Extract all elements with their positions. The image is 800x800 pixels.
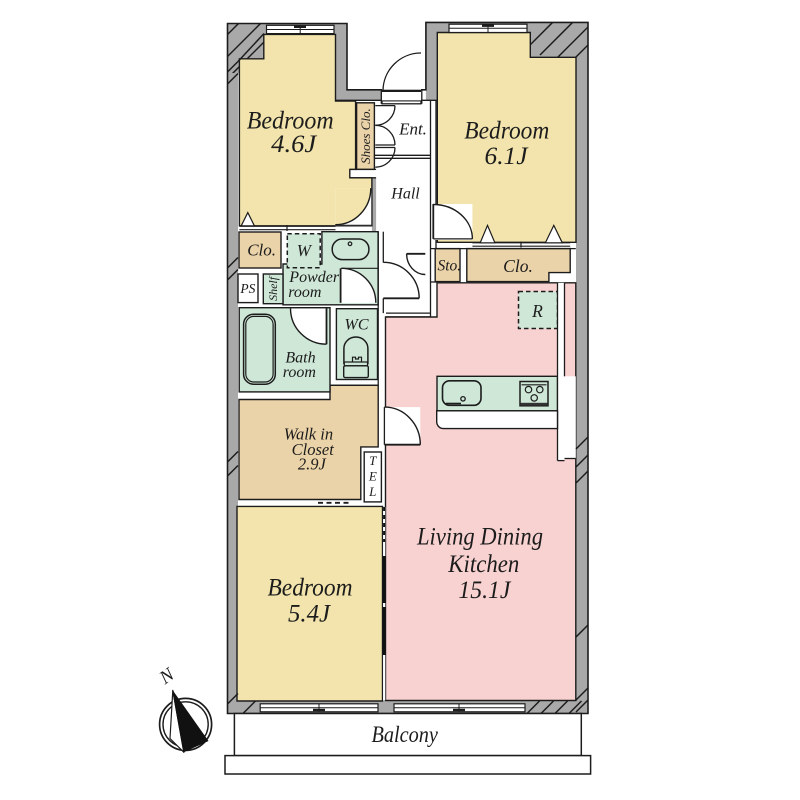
svg-text:Sto.: Sto.: [437, 257, 461, 274]
svg-text:Kitchen: Kitchen: [447, 551, 519, 578]
svg-text:Clo.: Clo.: [247, 241, 276, 260]
svg-text:E: E: [368, 469, 377, 484]
svg-text:W: W: [297, 241, 313, 260]
svg-text:5.4J: 5.4J: [288, 601, 332, 628]
svg-text:2.9J: 2.9J: [298, 455, 327, 474]
svg-text:Ent.: Ent.: [398, 120, 427, 139]
svg-text:Shoes Clo.: Shoes Clo.: [358, 108, 373, 164]
svg-text:L: L: [368, 484, 376, 499]
svg-text:room: room: [288, 284, 321, 301]
svg-text:Living Dining: Living Dining: [416, 524, 543, 551]
svg-text:Bedroom: Bedroom: [268, 575, 353, 602]
svg-text:R: R: [531, 301, 543, 321]
svg-text:Bedroom: Bedroom: [464, 118, 549, 145]
svg-text:T: T: [369, 453, 377, 468]
svg-text:15.1J: 15.1J: [458, 577, 512, 604]
svg-text:Shelf: Shelf: [266, 275, 280, 301]
svg-text:6.1J: 6.1J: [485, 143, 530, 170]
svg-text:Clo.: Clo.: [503, 256, 533, 276]
svg-text:PS: PS: [239, 281, 255, 296]
svg-text:Hall: Hall: [390, 185, 420, 202]
svg-text:Balcony: Balcony: [371, 722, 438, 747]
svg-text:room: room: [283, 364, 316, 381]
svg-text:WC: WC: [345, 317, 369, 334]
svg-text:4.6J: 4.6J: [271, 131, 318, 158]
